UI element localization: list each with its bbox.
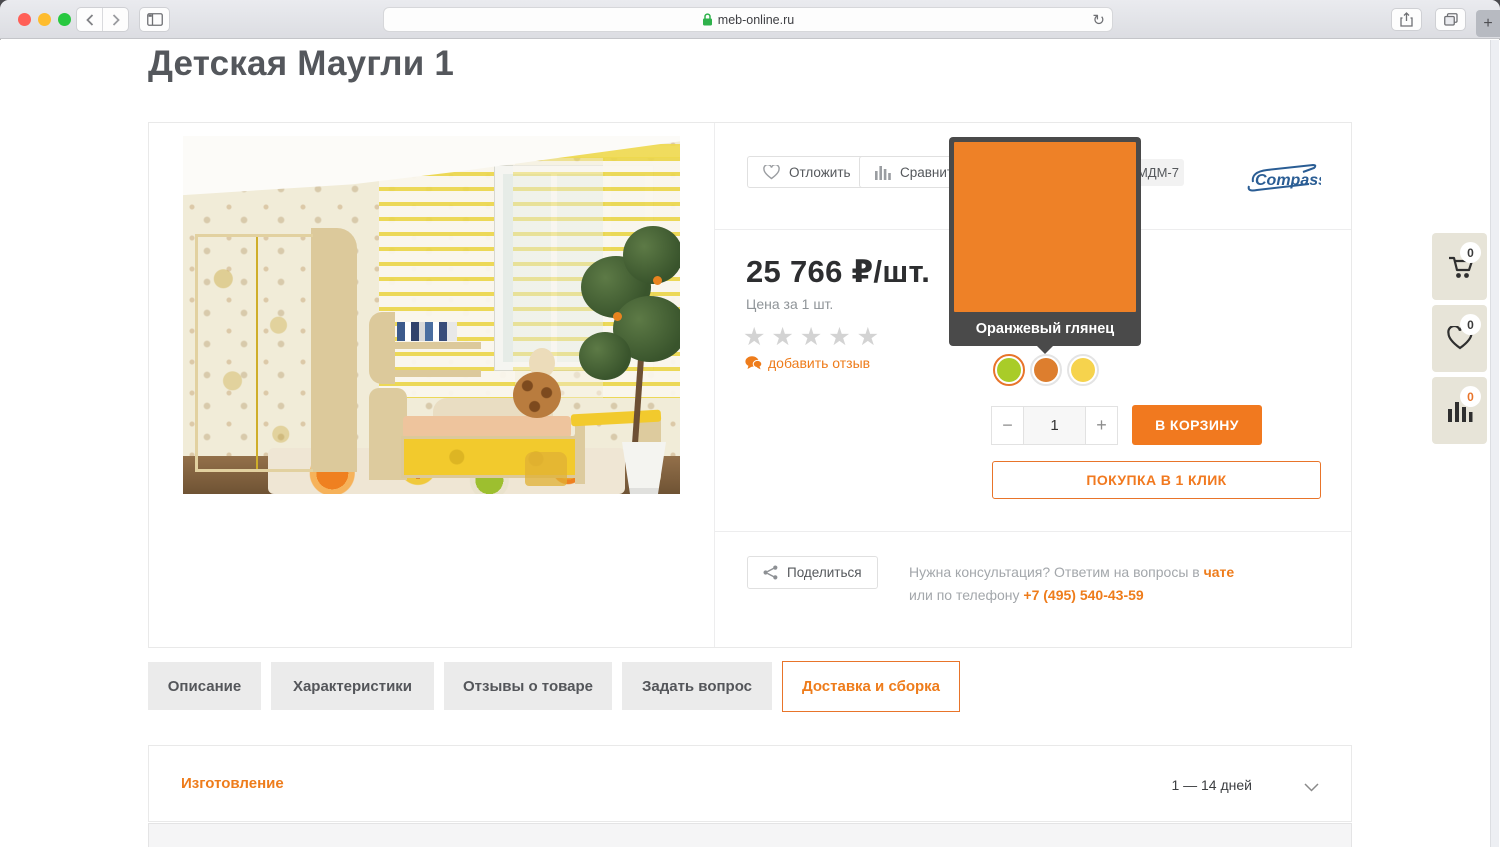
bed-mattress [403,416,571,438]
browser-toolbar: meb-online.ru ↻ + [0,0,1500,39]
accordion-title: Изготовление [181,775,284,792]
ssl-lock-icon [702,13,713,26]
share-icon [763,565,778,580]
compass-logo-icon: Compass [1243,156,1321,196]
card-divider-bottom [714,531,1351,532]
color-swatch-yellow[interactable] [1067,354,1099,386]
forward-button[interactable] [103,8,128,31]
plant-foliage [579,332,631,380]
minimize-window-button[interactable] [38,13,51,26]
stool [525,452,567,486]
one-click-buy-button[interactable]: ПОКУПКА В 1 КЛИК [992,461,1321,499]
tab-overview-button[interactable] [1435,8,1466,31]
quantity-value[interactable]: 1 [1023,406,1086,445]
close-window-button[interactable] [18,13,31,26]
page-title: Детская Маугли 1 [148,44,454,84]
favorites-count-badge: 0 [1460,314,1481,335]
share-button[interactable]: Поделиться [747,556,878,589]
consultation-text: Нужна консультация? Ответим на вопросы в… [909,561,1359,607]
swatch-yellow-fill [1071,358,1095,382]
consultation-line2: или по телефону [909,587,1023,603]
product-price: 25 766 ₽/шт. [746,254,930,290]
address-bar[interactable]: meb-online.ru ↻ [383,7,1113,32]
chevron-down-icon [1304,779,1319,797]
tab-specifications[interactable]: Характеристики [271,662,434,710]
color-swatch-green[interactable] [993,354,1025,386]
new-tab-button[interactable]: + [1476,10,1500,37]
swatch-preview-image [954,142,1136,312]
defer-button[interactable]: Отложить [747,156,867,188]
price-caption: Цена за 1 шт. [746,296,833,312]
bar-chart-icon [875,165,891,180]
rating-stars: ★★★★★ [743,322,885,352]
quantity-stepper: − 1 + [991,406,1118,445]
swatch-orange-fill [1034,358,1058,382]
chat-link[interactable]: чате [1204,564,1235,580]
quantity-plus-button[interactable]: + [1085,406,1118,445]
chevron-left-icon [86,14,94,26]
tabs-overview-icon [1444,13,1458,26]
address-url: meb-online.ru [718,13,794,27]
swatch-tooltip-label: Оранжевый глянец [954,312,1136,337]
orange-fruit [613,312,622,321]
floating-favorites-button[interactable]: 0 [1432,305,1487,372]
add-to-cart-button[interactable]: В КОРЗИНУ [1132,405,1262,445]
shelf-board [389,342,481,349]
tooltip-arrow [1037,346,1053,354]
heart-icon [763,165,780,180]
price-value: 25 766 [746,254,843,289]
chevron-right-icon [112,14,120,26]
plus-icon: + [1483,15,1492,33]
tab-reviews[interactable]: Отзывы о товаре [444,662,612,710]
giraffe-toy-body [513,372,561,418]
compare-count-badge: 0 [1460,386,1481,407]
nav-buttons [76,7,129,32]
accordion-value: 1 — 14 дней [1171,777,1252,793]
swatch-green-fill [997,358,1021,382]
share-label: Поделиться [787,565,862,580]
color-swatch-orange[interactable] [1030,354,1062,386]
comment-icon [745,356,762,370]
plant-foliage [623,226,680,284]
books [397,322,457,341]
sidebar-icon [147,13,163,26]
share-page-button[interactable] [1391,8,1422,31]
orange-fruit [653,276,662,285]
price-unit: ₽/шт. [852,254,931,289]
phone-link[interactable]: +7 (495) 540-43-59 [1023,587,1143,603]
tab-delivery-assembly[interactable]: Доставка и сборка [782,661,960,712]
product-image[interactable] [183,136,680,494]
wardrobe [311,228,357,472]
accordion-manufacturing[interactable]: Изготовление 1 — 14 дней [148,745,1352,822]
add-review-link[interactable]: добавить отзыв [745,355,870,371]
accordion-next-row[interactable] [148,823,1352,847]
tab-description[interactable]: Описание [148,662,261,710]
defer-label: Отложить [789,165,851,180]
card-vertical-divider [714,123,715,647]
floating-cart-button[interactable]: 0 [1432,233,1487,300]
brand-logo[interactable]: Compass [1242,155,1322,197]
sidebar-toggle-button[interactable] [139,7,170,32]
share-box-arrow-icon [1400,12,1413,27]
wardrobe-doors [195,234,313,472]
consultation-line1: Нужна консультация? Ответим на вопросы в [909,564,1204,580]
svg-text:Compass: Compass [1255,172,1321,189]
floating-compare-button[interactable]: 0 [1432,377,1487,444]
browser-window: meb-online.ru ↻ + Детская Маугли 1 [0,0,1500,847]
add-review-label: добавить отзыв [768,355,870,371]
refresh-icon[interactable]: ↻ [1092,11,1105,29]
back-button[interactable] [77,8,103,31]
product-card: Отложить Сравнить МДМ-7 Compass 25 766 ₽… [148,122,1352,648]
swatch-tooltip: Оранжевый глянец [949,137,1141,346]
desk-leg [575,424,585,484]
scrollbar-track[interactable] [1490,40,1499,847]
zoom-window-button[interactable] [58,13,71,26]
quantity-minus-button[interactable]: − [991,406,1024,445]
cart-count-badge: 0 [1460,242,1481,263]
shelf-board [389,370,481,377]
tab-ask-question[interactable]: Задать вопрос [622,662,772,710]
